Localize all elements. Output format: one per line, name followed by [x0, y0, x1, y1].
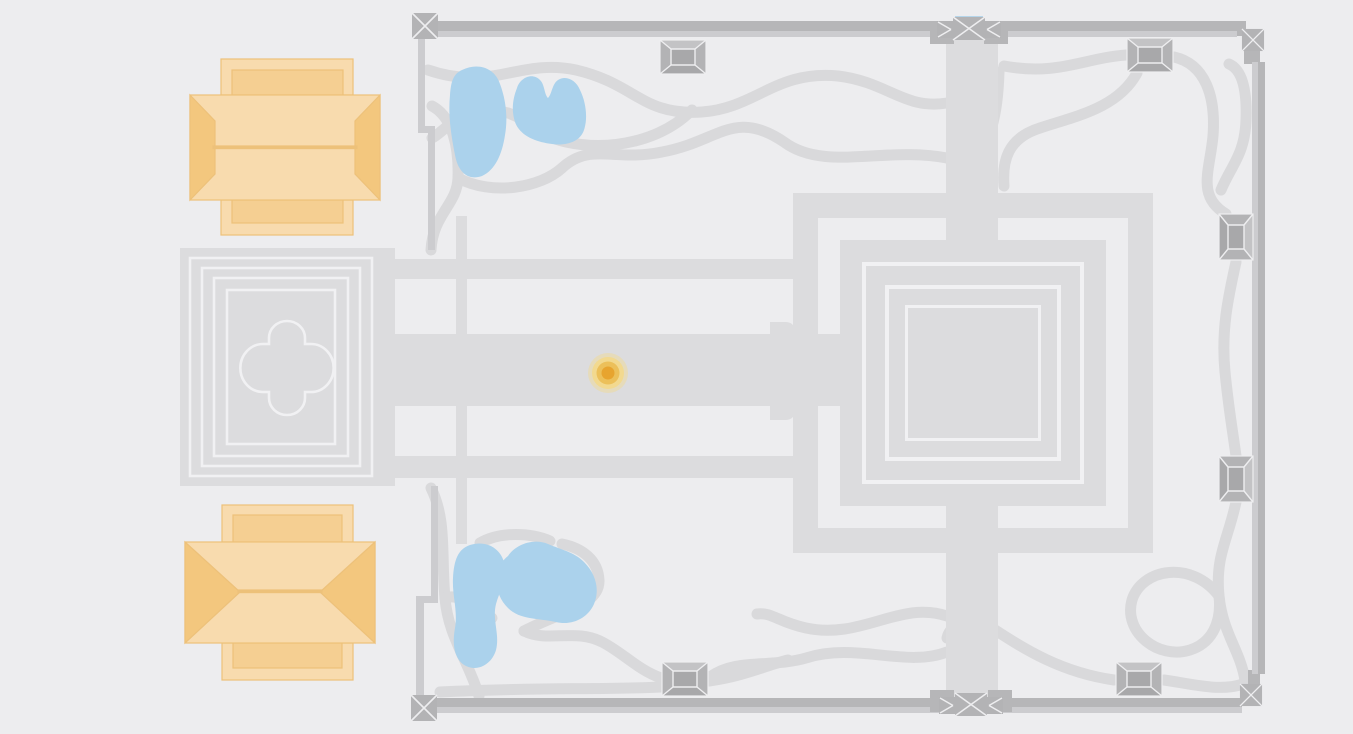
gatehouse-south-west [662, 662, 708, 696]
library-n-wing-top-roof [232, 70, 343, 95]
library-s-wing-bottom-roof [233, 643, 342, 668]
west-gopura [180, 248, 395, 486]
marker-core [602, 367, 615, 380]
corner-tower-se [1240, 684, 1262, 706]
gatehouse-east-upper [1219, 214, 1253, 260]
wall-right-dark [1258, 62, 1265, 674]
library-n-wing-bottom-roof [232, 200, 343, 223]
wall-left-lower-2 [416, 601, 424, 701]
location-marker[interactable] [588, 353, 628, 393]
north-causeway [946, 40, 998, 242]
gatehouse-north-east [1127, 38, 1173, 72]
gatehouse-east-lower [1219, 456, 1253, 502]
temple-sanctuary [908, 308, 1038, 438]
map-canvas[interactable] [0, 0, 1353, 734]
library-n-ridge [213, 146, 357, 149]
gatehouse-south-east [1116, 662, 1162, 696]
corner-tower-sw [411, 695, 437, 721]
central-temple [793, 193, 1153, 553]
north-terrace-band [393, 259, 794, 279]
south-gate [930, 690, 1012, 716]
path-s-wallside [440, 687, 661, 692]
south-terrace-band [393, 456, 794, 478]
south-causeway [946, 504, 998, 698]
wall-bottom-dark [422, 698, 1242, 707]
wall-left-lower-1 [431, 486, 438, 600]
wall-bottom-light [422, 707, 1242, 713]
wall-left-upper-2 [428, 131, 435, 250]
wall-top-light [425, 31, 1237, 37]
corner-tower-ne [1242, 29, 1264, 51]
corner-tower-nw [412, 13, 438, 39]
gatehouse-north-west [660, 40, 706, 74]
west-causeway-pad [770, 322, 795, 420]
library-s-ridge [238, 590, 322, 593]
wall-left-upper-1 [418, 36, 425, 130]
library-s-wing-top-roof [233, 515, 342, 542]
wall-top-dark [425, 21, 1237, 31]
wall-right-light [1252, 62, 1258, 674]
